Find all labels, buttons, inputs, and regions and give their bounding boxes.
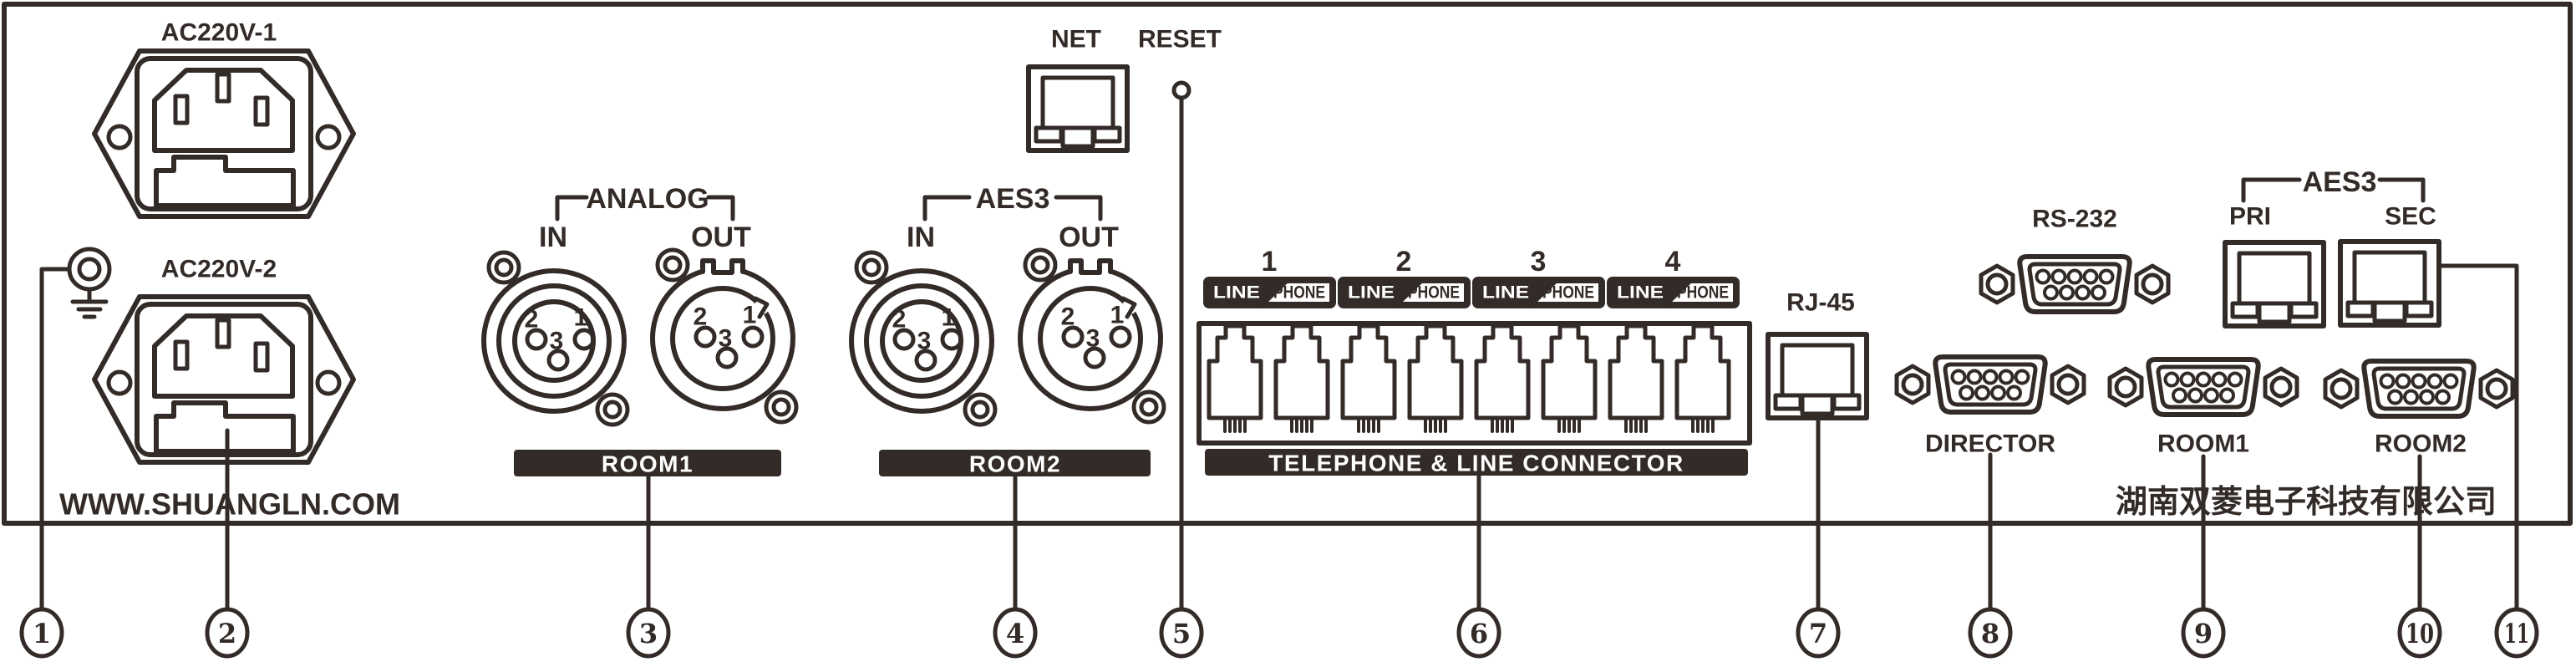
company-name: 湖南双菱电子科技有限公司 — [2116, 483, 2497, 520]
callout-11-number: 11 — [2504, 618, 2529, 649]
phone-group-3-number: 3 — [1531, 246, 1547, 278]
aes3-xlr-section: AES3 IN OUT ROOM2 — [851, 183, 1164, 477]
reset-label: RESET — [1138, 26, 1222, 53]
phone-group-1-number: 1 — [1262, 246, 1278, 278]
callout-2-number: 2 — [218, 618, 236, 649]
rj11-jack — [1410, 326, 1461, 431]
aes3-bracket-label: AES3 — [976, 183, 1050, 215]
aes3-net-section: AES3 PRI SEC — [2225, 166, 2439, 326]
phone-group-2-number: 2 — [1396, 246, 1412, 278]
badge-3-phone-label: PHONE — [1542, 283, 1594, 303]
director-db9-connector — [1897, 357, 2084, 412]
ac-inlet-2-label: AC220V-2 — [161, 256, 277, 283]
room1-db9-label: ROOM1 — [2157, 430, 2249, 458]
callout-9-number: 9 — [2194, 618, 2213, 649]
callout-4: 4 — [995, 609, 1035, 656]
aes3-in-xlr-connector — [851, 252, 995, 425]
reset-button — [1174, 83, 1189, 98]
power-section: AC220V-1 AC220V-2 WWW.SHUANGLN.COM — [59, 19, 400, 522]
rj11-jack — [1343, 326, 1395, 431]
callout-2: 2 — [207, 609, 247, 656]
aes3-out-xlr-connector — [1020, 250, 1164, 422]
callout-9: 9 — [2183, 609, 2223, 656]
net-rj45-jack — [1029, 67, 1127, 150]
rj45-jack — [1768, 334, 1867, 418]
sec-rj45-jack — [2340, 242, 2439, 325]
analog-in-label: IN — [539, 222, 567, 253]
callout-7: 7 — [1798, 609, 1838, 656]
callout-markers: 1 2 3 4 5 6 7 8 — [22, 609, 2537, 656]
callout-10: 10 — [2400, 609, 2440, 656]
callout-5: 5 — [1161, 609, 1202, 656]
callout-1-number: 1 — [33, 618, 51, 649]
rear-panel-diagram: 2 1 3 — [0, 0, 2576, 662]
pri-label: PRI — [2229, 203, 2271, 231]
ac-inlet-2 — [94, 297, 353, 462]
rj11-jack — [1543, 326, 1595, 431]
analog-bracket-label: ANALOG — [586, 183, 709, 215]
ac-inlet-1-label: AC220V-1 — [161, 19, 277, 47]
leader-line-1 — [42, 269, 69, 609]
badge-4-line-label: LINE — [1617, 283, 1664, 303]
network-section: NET RESET — [1029, 26, 1222, 151]
analog-out-label: OUT — [691, 222, 751, 253]
room-db9-section: ROOM1 ROOM2 — [2110, 359, 2512, 458]
callout-6-number: 6 — [1470, 618, 1488, 649]
badge-3-line-label: LINE — [1482, 283, 1529, 303]
sec-label: SEC — [2385, 203, 2436, 231]
callout-1: 1 — [22, 609, 62, 656]
aes3-in-label: IN — [907, 222, 935, 253]
callout-leaders — [42, 98, 2517, 609]
aes3-out-label: OUT — [1059, 222, 1119, 253]
rj11-jack — [1476, 326, 1528, 431]
badge-2-line-label: LINE — [1348, 283, 1395, 303]
badge-2-phone-label: PHONE — [1408, 283, 1460, 303]
ac-inlet-1 — [94, 51, 353, 216]
callout-6: 6 — [1459, 609, 1499, 656]
director-section: DIRECTOR — [1897, 357, 2084, 458]
callout-10-number: 10 — [2406, 618, 2434, 649]
rj45-label: RJ-45 — [1786, 289, 1855, 317]
rj11-jack — [1276, 326, 1328, 431]
ground-symbol — [69, 249, 109, 317]
aes3-net-bracket-label: AES3 — [2303, 166, 2377, 198]
rj11-jack — [1677, 326, 1729, 431]
badge-1-line-label: LINE — [1213, 283, 1260, 303]
callout-3-number: 3 — [639, 618, 658, 649]
analog-out-xlr-connector — [653, 250, 796, 422]
callout-3: 3 — [628, 609, 668, 656]
analog-section: ANALOG IN OUT ROOM1 — [484, 183, 796, 477]
telephone-line-section: 1 2 3 4 LINE PHONE LINE PHONE LINE PHONE… — [1199, 246, 1750, 476]
rs232-section: RS-232 — [1981, 206, 2168, 313]
callout-11: 11 — [2497, 609, 2537, 656]
net-label: NET — [1051, 26, 1101, 53]
callout-7-number: 7 — [1809, 618, 1827, 649]
callout-5-number: 5 — [1172, 618, 1191, 649]
room2-db9-connector — [2325, 361, 2512, 416]
website-text: WWW.SHUANGLN.COM — [59, 487, 400, 522]
rs232-db9-connector — [1981, 257, 2168, 312]
rj11-jack — [1610, 326, 1662, 431]
rs232-label: RS-232 — [2032, 206, 2117, 233]
rj11-jack — [1209, 326, 1261, 431]
pri-rj45-jack — [2225, 242, 2324, 326]
room1-db9-connector — [2110, 359, 2297, 415]
badge-4-phone-label: PHONE — [1677, 283, 1729, 303]
telephone-bar-label: TELEPHONE & LINE CONNECTOR — [1268, 451, 1684, 476]
room2-db9-label: ROOM2 — [2375, 430, 2467, 458]
phone-group-4-number: 4 — [1665, 246, 1681, 278]
callout-8-number: 8 — [1981, 618, 1999, 649]
callout-8: 8 — [1970, 609, 2010, 656]
analog-in-xlr-connector — [484, 252, 627, 425]
rj45-section: RJ-45 — [1768, 289, 1867, 419]
callout-4-number: 4 — [1006, 618, 1024, 649]
badge-1-phone-label: PHONE — [1273, 283, 1325, 303]
